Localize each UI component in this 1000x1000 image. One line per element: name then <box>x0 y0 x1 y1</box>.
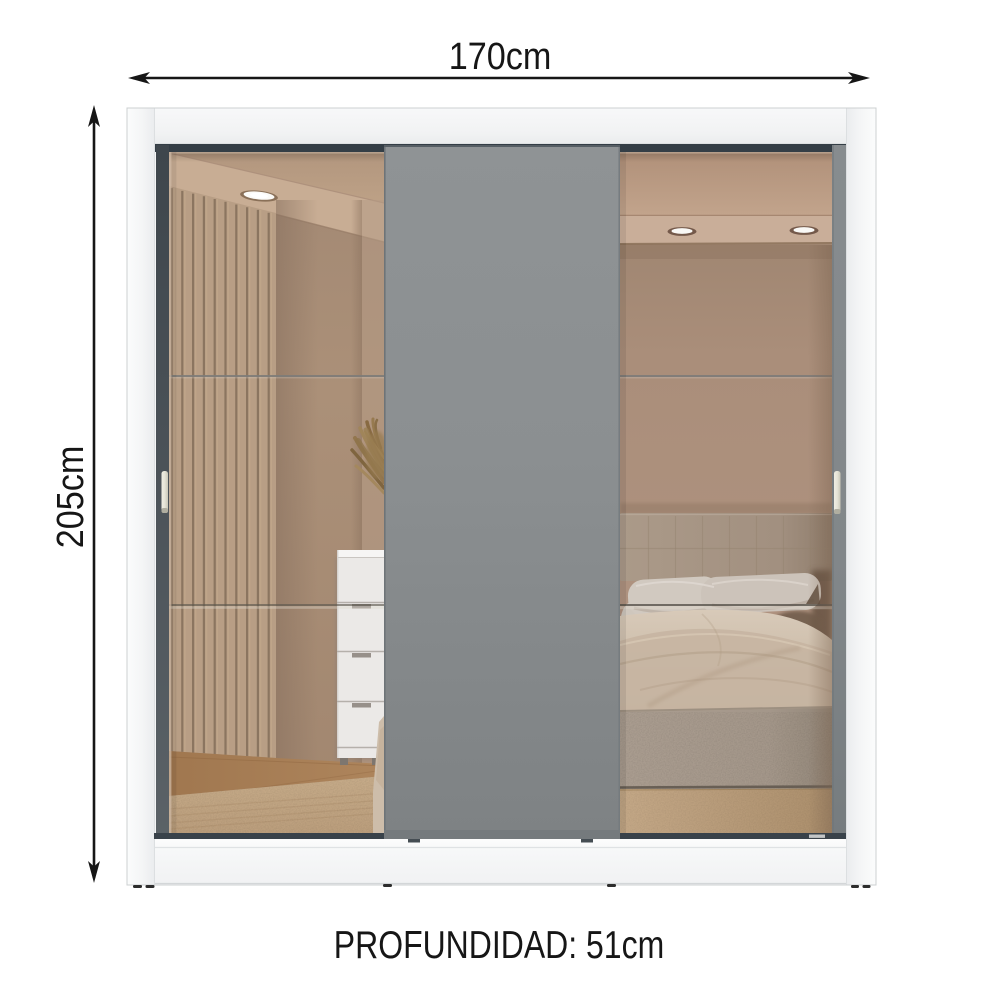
svg-text:205cm: 205cm <box>48 446 91 549</box>
svg-text:170cm: 170cm <box>449 34 552 77</box>
svg-text:PROFUNDIDAD: 51cm: PROFUNDIDAD: 51cm <box>334 923 664 967</box>
